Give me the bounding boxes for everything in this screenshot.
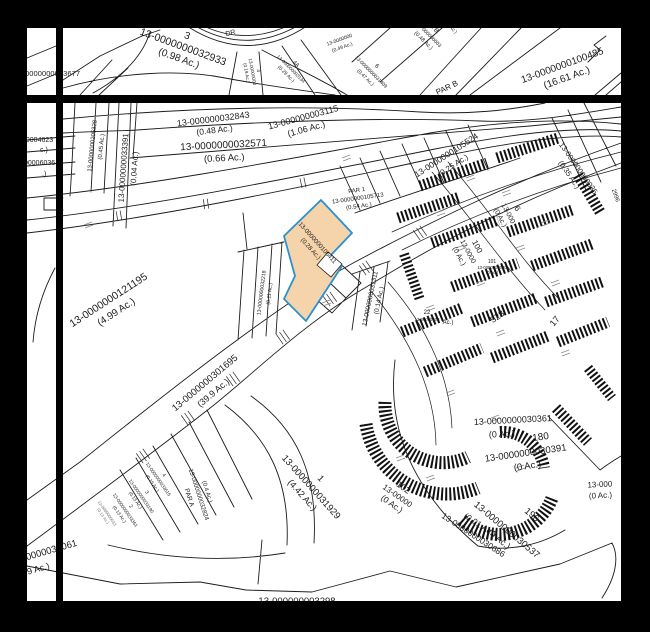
svg-text:13-000: 13-000 (587, 479, 613, 489)
svg-text:22: 22 (424, 310, 431, 316)
parcel-label-6036-fragment: 00006036 (24, 160, 55, 167)
svg-text:(0 Ac.): (0 Ac.) (486, 270, 499, 275)
horizontal-neatline (27, 95, 621, 103)
vertical-neatline (56, 28, 63, 601)
svg-text:(0.66 Ac.): (0.66 Ac.) (204, 152, 245, 165)
svg-text:(0 Ac.): (0 Ac.) (489, 428, 516, 439)
parcel-label-4623-ac-fragment: c.) (40, 147, 48, 154)
parcel-label-6036-ac-fragment: .) (42, 171, 46, 178)
svg-text:(0 Ac.): (0 Ac.) (589, 490, 613, 500)
parcel-label-lot22-ac: Ac.) (443, 320, 454, 326)
parcel-label-30361-ac: (0 Ac.) (489, 428, 516, 439)
parcel-map-viewport[interactable]: 3 13-0000000032933 (0.98 Ac.) DR 4 13-00… (0, 0, 650, 632)
svg-text:13-00000000: 13-00000000 (415, 317, 440, 322)
